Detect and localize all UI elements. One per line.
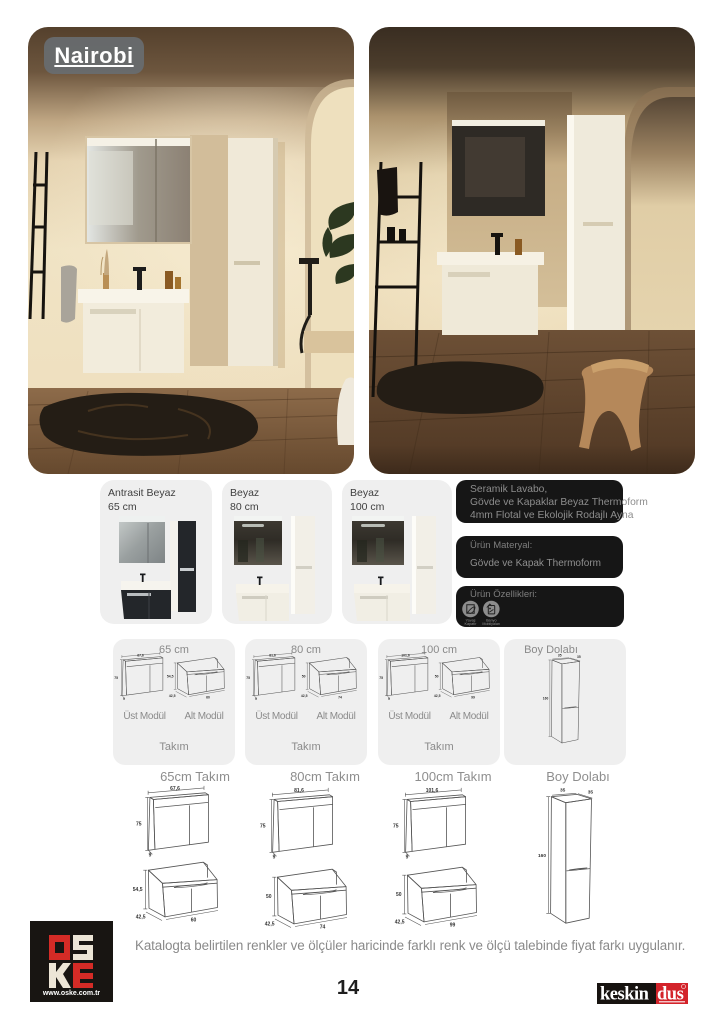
svg-text:74: 74 (338, 696, 342, 700)
svg-text:60: 60 (206, 696, 210, 700)
svg-text:54,5: 54,5 (133, 887, 143, 893)
svg-text:9: 9 (388, 697, 390, 701)
svg-text:9: 9 (273, 855, 276, 861)
svg-text:75: 75 (393, 824, 399, 830)
svg-text:www.oske.com.tr: www.oske.com.tr (42, 990, 101, 997)
svg-text:101,6: 101,6 (426, 788, 439, 794)
svg-text:42,5: 42,5 (265, 922, 275, 928)
svg-text:dus: dus (657, 985, 684, 1005)
svg-text:99: 99 (450, 923, 456, 929)
svg-text:81,6: 81,6 (294, 788, 304, 794)
svg-text:Boy Dolabı: Boy Dolabı (546, 769, 610, 784)
svg-text:81,6: 81,6 (269, 654, 276, 658)
svg-text:9: 9 (406, 855, 409, 861)
svg-text:9: 9 (255, 697, 257, 701)
svg-text:50: 50 (302, 675, 306, 679)
svg-text:50: 50 (396, 892, 402, 898)
svg-text:42,5: 42,5 (136, 915, 146, 921)
svg-text:101,6: 101,6 (401, 654, 410, 658)
svg-text:50: 50 (435, 675, 439, 679)
svg-text:42,5: 42,5 (301, 694, 308, 698)
svg-text:42,5: 42,5 (395, 920, 405, 926)
svg-text:54,5: 54,5 (167, 675, 174, 679)
svg-text:42,5: 42,5 (169, 694, 176, 698)
svg-text:67,6: 67,6 (170, 786, 180, 792)
svg-text:75: 75 (114, 676, 118, 680)
svg-text:67,6: 67,6 (137, 654, 144, 658)
svg-text:75: 75 (260, 824, 266, 830)
svg-text:Mobilyaları: Mobilyaları (482, 622, 500, 626)
svg-text:100cm Takım: 100cm Takım (414, 769, 491, 784)
svg-text:75: 75 (136, 822, 142, 828)
svg-text:60: 60 (191, 918, 197, 924)
svg-text:42,5: 42,5 (434, 694, 441, 698)
svg-text:65cm Takım: 65cm Takım (160, 769, 230, 784)
svg-text:50: 50 (266, 894, 272, 900)
svg-text:75: 75 (246, 676, 250, 680)
svg-text:80cm Takım: 80cm Takım (290, 769, 360, 784)
svg-text:Kapatır: Kapatır (465, 622, 478, 626)
svg-text:75: 75 (379, 676, 383, 680)
svg-text:keskin: keskin (600, 985, 650, 1005)
svg-text:9: 9 (149, 853, 152, 859)
svg-text:9: 9 (123, 697, 125, 701)
svg-text:74: 74 (320, 925, 326, 931)
svg-text:99: 99 (471, 696, 475, 700)
